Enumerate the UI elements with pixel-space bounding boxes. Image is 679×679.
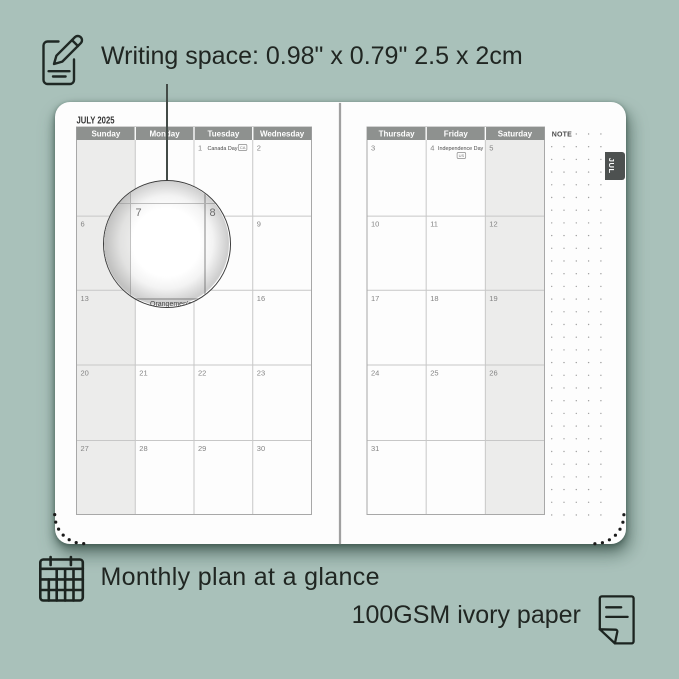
svg-text:26: 26 (489, 369, 497, 378)
svg-text:4: 4 (430, 144, 434, 153)
svg-text:25: 25 (430, 369, 438, 378)
svg-text:18: 18 (430, 294, 438, 303)
svg-text:28: 28 (139, 444, 147, 453)
svg-text:11: 11 (430, 220, 438, 229)
svg-text:JULY 2025: JULY 2025 (77, 116, 115, 127)
svg-text:12: 12 (489, 220, 497, 229)
svg-text:Canada Day: Canada Day (208, 146, 238, 152)
svg-text:Wednesday: Wednesday (260, 129, 305, 138)
svg-text:23: 23 (257, 369, 265, 378)
svg-text:CA: CA (240, 145, 246, 150)
svg-text:1: 1 (198, 144, 202, 153)
svg-text:NOTE: NOTE (552, 132, 572, 139)
svg-text:19: 19 (489, 294, 497, 303)
svg-text:9: 9 (257, 220, 261, 229)
svg-text:10: 10 (371, 220, 379, 229)
svg-text:20: 20 (81, 369, 89, 378)
svg-text:17: 17 (371, 294, 379, 303)
svg-text:Independence Day: Independence Day (438, 146, 484, 152)
svg-text:Monday: Monday (149, 129, 180, 138)
svg-text:21: 21 (139, 369, 147, 378)
svg-text:3: 3 (371, 144, 375, 153)
svg-text:16: 16 (257, 294, 265, 303)
svg-text:13: 13 (81, 294, 89, 303)
svg-text:29: 29 (198, 444, 206, 453)
svg-text:24: 24 (371, 369, 379, 378)
svg-text:Sunday: Sunday (91, 129, 120, 138)
svg-text:Saturday: Saturday (498, 129, 533, 138)
svg-text:6: 6 (81, 220, 85, 229)
svg-text:Thursday: Thursday (379, 129, 416, 138)
svg-text:31: 31 (371, 444, 379, 453)
svg-text:Tuesday: Tuesday (207, 129, 239, 138)
svg-text:2: 2 (257, 144, 261, 153)
svg-text:22: 22 (198, 369, 206, 378)
svg-text:27: 27 (81, 444, 89, 453)
svg-text:30: 30 (257, 444, 265, 453)
svg-text:Friday: Friday (444, 129, 469, 138)
svg-text:US: US (459, 153, 465, 158)
svg-text:5: 5 (489, 144, 493, 153)
